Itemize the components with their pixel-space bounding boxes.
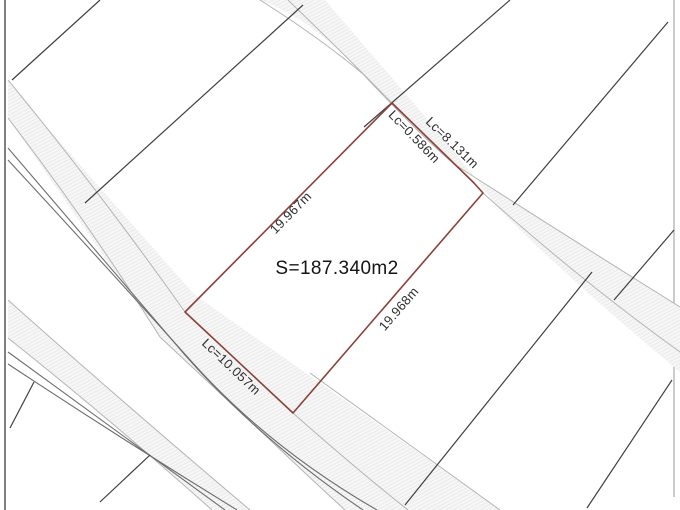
lot-line-bottom-left-1 — [10, 382, 34, 428]
parcel-area-label: S=187.340m2 — [275, 258, 398, 279]
cadastral-plan: 19.967m 19.968m Lc=10.057m Lc=0.586m Lc=… — [0, 0, 680, 510]
road-upper-hatch-band — [260, 0, 680, 372]
lot-line-upper-right — [513, 22, 668, 205]
lot-line-bottom-left-2 — [100, 455, 150, 502]
lot-line-bottom-right — [587, 380, 672, 508]
dimension-label-nw-edge: 19.967m — [267, 189, 315, 237]
lot-line-top — [364, 0, 510, 127]
lot-line-lower-block — [405, 272, 592, 505]
plan-drawing: 19.967m 19.968m Lc=10.057m Lc=0.586m Lc=… — [0, 0, 680, 510]
road-corner-sw-edge — [8, 338, 212, 510]
boundary-line-olive — [12, 0, 100, 80]
lot-line-left-block — [85, 5, 303, 203]
